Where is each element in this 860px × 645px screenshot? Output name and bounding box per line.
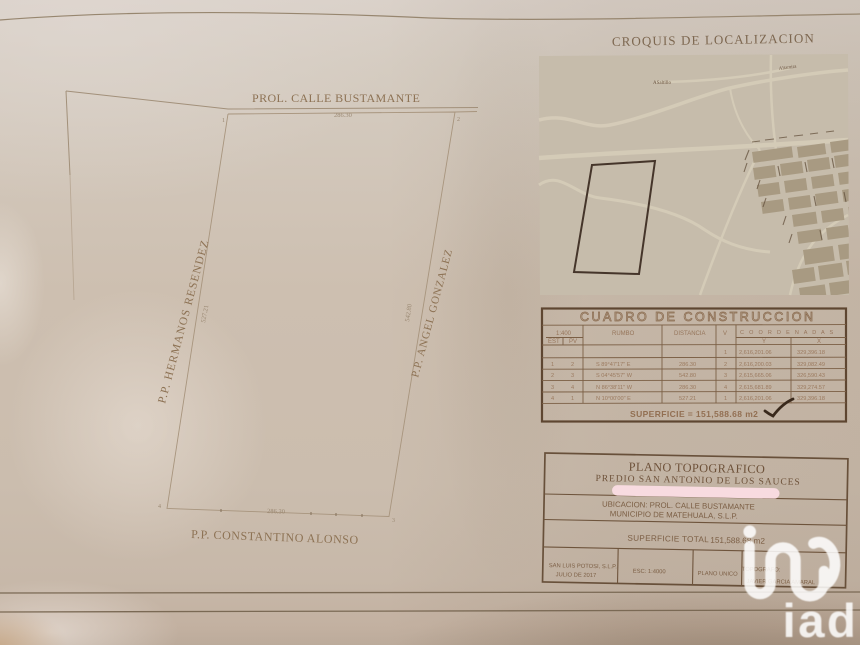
svg-text:N 86°38'11" W: N 86°38'11" W [596, 385, 633, 391]
svg-text:1: 1 [551, 362, 554, 368]
svg-text:MUNICIPIO DE MATEHUALA, S.L.P.: MUNICIPIO DE MATEHUALA, S.L.P. [610, 509, 738, 520]
svg-text:542.80: 542.80 [404, 304, 414, 323]
svg-text:1:400: 1:400 [556, 331, 572, 337]
svg-text:151,588.68 m2: 151,588.68 m2 [710, 536, 765, 546]
svg-text:2,615,665.06: 2,615,665.06 [739, 373, 772, 379]
svg-text:2,616,201.06: 2,616,201.06 [739, 396, 772, 402]
svg-text:JULIO DE 2017: JULIO DE 2017 [556, 572, 597, 579]
svg-text:PLANO UNICO: PLANO UNICO [698, 571, 739, 578]
svg-text:DISTANCIA: DISTANCIA [674, 331, 706, 337]
svg-text:iad: iad [783, 595, 859, 645]
svg-text:PROL. CALLE BUSTAMANTE: PROL. CALLE BUSTAMANTE [252, 91, 420, 105]
svg-text:286.30: 286.30 [679, 385, 696, 391]
svg-text:4: 4 [724, 385, 727, 391]
svg-text:PV: PV [569, 339, 577, 345]
svg-text:3: 3 [571, 373, 574, 379]
svg-text:3: 3 [551, 385, 554, 391]
svg-text:JAVIER GARCIA AMARAL: JAVIER GARCIA AMARAL [747, 579, 816, 586]
svg-text:4: 4 [551, 396, 554, 402]
svg-text:4: 4 [158, 504, 161, 510]
svg-text:527.21: 527.21 [679, 396, 696, 402]
svg-text:2,615,681.89: 2,615,681.89 [739, 385, 772, 391]
svg-text:329,274.57: 329,274.57 [797, 385, 825, 391]
svg-text:V: V [723, 331, 727, 337]
svg-text:ASaltillo: ASaltillo [653, 81, 672, 86]
svg-text:2: 2 [551, 373, 554, 379]
svg-text:RUMBO: RUMBO [612, 331, 635, 337]
svg-text:1: 1 [724, 396, 727, 402]
svg-text:EST: EST [548, 339, 560, 345]
svg-text:2,616,200.03: 2,616,200.03 [739, 362, 772, 368]
svg-text:3: 3 [392, 518, 395, 524]
svg-text:ESC: 1:4000: ESC: 1:4000 [633, 569, 666, 576]
svg-text:S 04°45'57" W: S 04°45'57" W [596, 373, 633, 379]
svg-text:X: X [817, 339, 821, 345]
svg-text:286.30: 286.30 [267, 508, 285, 516]
svg-text:P.P. CONSTANTINO ALONSO: P.P. CONSTANTINO ALONSO [191, 527, 359, 547]
svg-text:SAN LUIS POTOSI, S.L.P.: SAN LUIS POTOSI, S.L.P. [549, 563, 618, 570]
svg-text:S 89°47'17" E: S 89°47'17" E [596, 362, 631, 368]
svg-text:1: 1 [222, 118, 225, 124]
svg-text:329,396.18: 329,396.18 [797, 350, 825, 356]
svg-text:527.21: 527.21 [200, 304, 210, 323]
svg-text:542.80: 542.80 [679, 373, 696, 379]
svg-text:1: 1 [571, 396, 574, 402]
svg-text:PLANO TOPOGRAFICO: PLANO TOPOGRAFICO [629, 460, 766, 477]
svg-text:4: 4 [571, 385, 574, 391]
svg-text:1: 1 [724, 350, 727, 356]
svg-text:286.30: 286.30 [679, 362, 696, 368]
svg-text:2,616,201.06: 2,616,201.06 [739, 350, 772, 356]
svg-text:286.30: 286.30 [334, 112, 352, 119]
svg-text:2: 2 [724, 362, 727, 368]
svg-text:2: 2 [571, 362, 574, 368]
svg-text:C O O R D E N A D A S: C O O R D E N A D A S [740, 330, 835, 336]
svg-text:N 10°00'00" E: N 10°00'00" E [596, 396, 631, 402]
svg-text:2: 2 [457, 117, 460, 123]
svg-text:326,590.43: 326,590.43 [797, 373, 825, 379]
svg-text:CUADRO DE CONSTRUCCION: CUADRO DE CONSTRUCCION [580, 310, 816, 324]
svg-text:329,082.49: 329,082.49 [797, 362, 825, 368]
svg-text:P.P. ANGEL GONZALEZ: P.P. ANGEL GONZALEZ [409, 247, 455, 378]
svg-text:SUPERFICIE = 151,588.68 m2: SUPERFICIE = 151,588.68 m2 [630, 409, 758, 419]
svg-text:329,396.18: 329,396.18 [797, 396, 825, 402]
svg-text:3: 3 [724, 373, 727, 379]
svg-text:CROQUIS DE LOCALIZACION: CROQUIS DE LOCALIZACION [612, 30, 815, 49]
svg-text:Y: Y [762, 339, 766, 345]
svg-text:SUPERFICIE TOTAL: SUPERFICIE TOTAL [627, 534, 709, 545]
